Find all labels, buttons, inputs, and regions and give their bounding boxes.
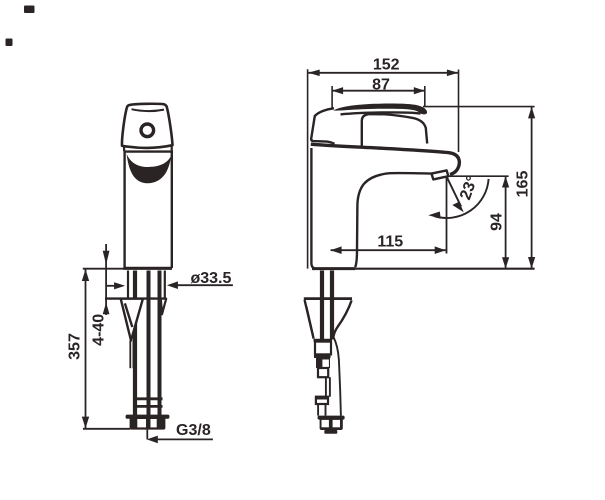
svg-text:G3/8: G3/8 bbox=[176, 422, 211, 439]
svg-text:152: 152 bbox=[373, 56, 400, 73]
svg-text:115: 115 bbox=[377, 234, 403, 251]
svg-text:ø33.5: ø33.5 bbox=[190, 270, 231, 287]
svg-text:4-40: 4-40 bbox=[91, 314, 108, 346]
svg-text:94: 94 bbox=[489, 213, 506, 231]
svg-text:165: 165 bbox=[515, 171, 532, 198]
svg-text:87: 87 bbox=[372, 77, 390, 94]
svg-text:357: 357 bbox=[66, 333, 83, 360]
svg-text:23°: 23° bbox=[457, 174, 481, 203]
